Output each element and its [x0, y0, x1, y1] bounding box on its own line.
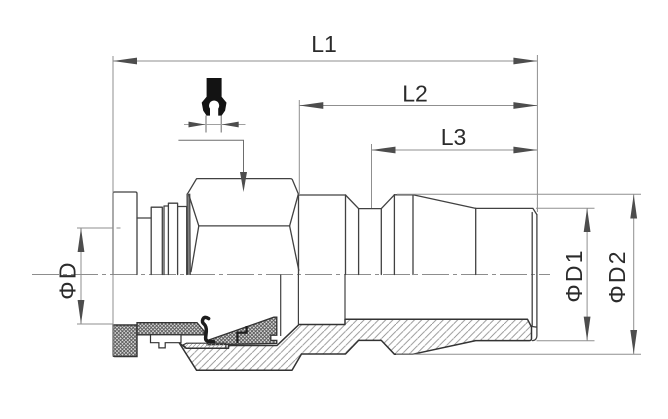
svg-text:L2: L2 [402, 81, 428, 107]
svg-text:ΦD: ΦD [55, 260, 81, 299]
svg-text:L1: L1 [311, 31, 337, 57]
svg-text:ΦD1: ΦD1 [561, 248, 587, 302]
svg-text:ΦD2: ΦD2 [604, 249, 630, 303]
svg-text:L3: L3 [441, 124, 467, 150]
